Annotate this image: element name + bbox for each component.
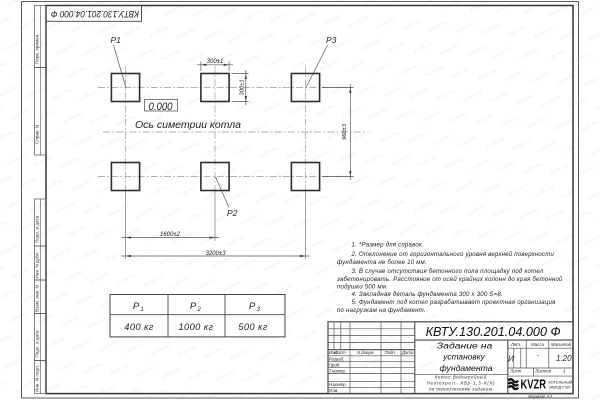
svg-text:Лист: Лист: [509, 368, 521, 373]
svg-text:фундамента не более 10 мм.: фундамента не более 10 мм.: [337, 259, 427, 266]
svg-text:1: 1: [141, 307, 144, 313]
svg-text:4. Закладная деталь фундамент: 4. Закладная деталь фундамента 300 х 300…: [352, 291, 503, 298]
svg-text:Лист: Лист: [334, 350, 346, 355]
svg-text:Инв. N дубл.: Инв. N дубл.: [35, 252, 40, 279]
svg-text:Взам. инв. N: Взам. инв. N: [35, 285, 40, 312]
svg-text:Лит.: Лит.: [510, 342, 521, 347]
svg-text:5. Фундамент под котел разраб: 5. Фундамент под котел разрабатывает про…: [352, 299, 557, 306]
svg-text:Масса: Масса: [531, 342, 544, 347]
svg-text:по нагрузкам на фундамент.: по нагрузкам на фундамент.: [337, 307, 426, 314]
svg-text:ЗАВОД РЭП: ЗАВОД РЭП: [549, 386, 571, 390]
svg-text:Перв. примен.: Перв. примен.: [35, 33, 40, 64]
svg-text:P: P: [190, 301, 197, 312]
svg-text:3. В случае отсутствия бетонн: 3. В случае отсутствия бетонного пола пл…: [352, 268, 544, 275]
svg-text:КОТЕЛЬНЫЙ: КОТЕЛЬНЫЙ: [549, 381, 573, 385]
svg-text:Масштаб: Масштаб: [551, 342, 572, 347]
svg-text:P3: P3: [326, 35, 337, 45]
svg-text:Подп.: Подп.: [385, 350, 396, 355]
svg-text:300±1: 300±1: [240, 79, 246, 95]
svg-text:подушки 500 мм.: подушки 500 мм.: [337, 284, 388, 291]
svg-text:Н.контр.: Н.контр.: [329, 382, 347, 387]
svg-text:960±3: 960±3: [342, 123, 348, 140]
svg-text:400 кг: 400 кг: [124, 322, 153, 332]
svg-text:1600±2: 1600±2: [160, 232, 181, 238]
svg-text:-: -: [537, 354, 539, 360]
svg-text:N докум.: N докум.: [357, 350, 374, 355]
svg-text:Heatexpert- КВр-1,5-К(К): Heatexpert- КВр-1,5-К(К): [427, 380, 496, 385]
svg-text:КВТУ.130.201.04.000 Ф: КВТУ.130.201.04.000 Ф: [426, 324, 561, 339]
svg-text:Инв. N подл.: Инв. N подл.: [35, 365, 40, 392]
svg-text:Справ. N: Справ. N: [35, 125, 40, 144]
svg-text:3200±3: 3200±3: [206, 251, 227, 257]
svg-text:фундамента: фундамента: [440, 363, 493, 373]
svg-text:Ось симетрии котла: Ось симетрии котла: [135, 120, 241, 131]
svg-text:0.000: 0.000: [149, 101, 174, 113]
svg-text:P: P: [133, 301, 140, 312]
svg-text:забетонировать. Расстояние от: забетонировать. Расстояние от осей крайн…: [336, 276, 563, 283]
svg-text:300±1: 300±1: [207, 59, 224, 65]
svg-text:Разраб.: Разраб.: [329, 356, 345, 361]
svg-text:установку: установку: [442, 352, 485, 362]
svg-text:P2: P2: [227, 208, 238, 218]
svg-text:KVZR: KVZR: [521, 378, 547, 392]
svg-text:И: И: [508, 355, 514, 364]
svg-text:КВТУ.130.201.04.000 Ф: КВТУ.130.201.04.000 Ф: [51, 9, 139, 19]
svg-text:Дата: Дата: [401, 350, 414, 355]
svg-text:Листов: Листов: [534, 368, 551, 373]
svg-text:2. Отклонение от горизонтальн: 2. Отклонение от горизонтального уровня …: [351, 251, 555, 258]
svg-text:P: P: [249, 301, 256, 312]
svg-text:Котел Водогрейный: Котел Водогрейный: [435, 374, 487, 379]
svg-text:P1: P1: [111, 35, 122, 45]
svg-text:Утв.: Утв.: [329, 388, 339, 393]
svg-text:Т.контр.: Т.контр.: [329, 368, 346, 373]
svg-text:Проб.: Проб.: [329, 362, 341, 367]
svg-text:Подп. и дата: Подп. и дата: [35, 330, 40, 358]
svg-text:2: 2: [197, 307, 202, 313]
svg-text:1:20: 1:20: [556, 354, 572, 363]
svg-text:1000 кг: 1000 кг: [178, 322, 213, 332]
svg-text:Формат А3: Формат А3: [528, 394, 552, 399]
svg-text:Подп. и дата: Подп. и дата: [35, 215, 40, 243]
svg-text:500 кг: 500 кг: [238, 322, 267, 332]
svg-text:Задание на: Задание на: [437, 340, 493, 350]
svg-text:по техническому заданию: по техническому заданию: [429, 386, 493, 391]
svg-text:1. *Размер для справок.: 1. *Размер для справок.: [352, 242, 424, 249]
